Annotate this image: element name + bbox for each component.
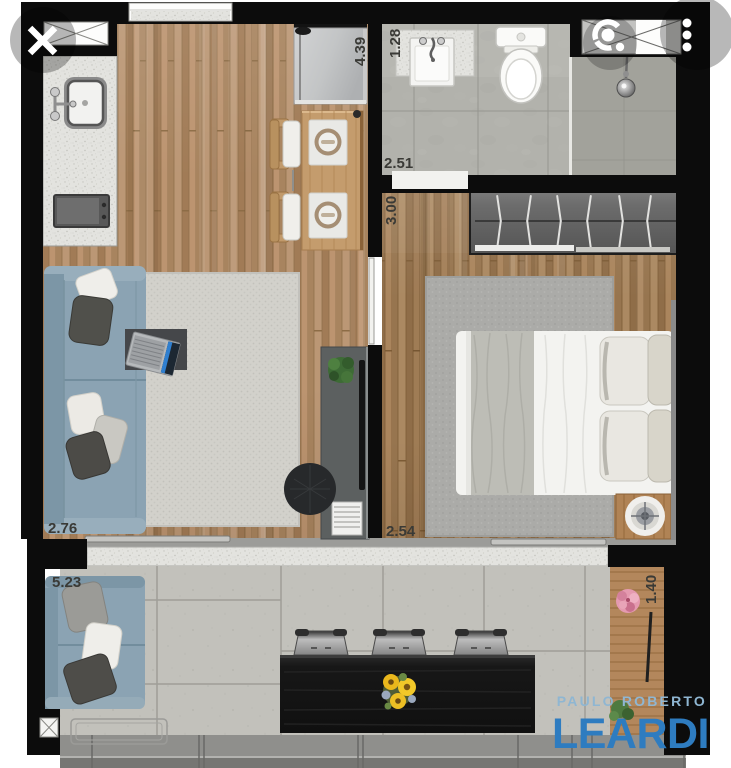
svg-text:3.00: 3.00 xyxy=(383,196,400,225)
svg-text:1.28: 1.28 xyxy=(387,29,404,58)
svg-text:1.40: 1.40 xyxy=(643,575,660,604)
svg-text:2.54: 2.54 xyxy=(386,523,416,540)
svg-text:PAULO ROBERTO: PAULO ROBERTO xyxy=(557,693,707,709)
svg-text:LEARDI: LEARDI xyxy=(552,710,709,758)
svg-text:5.23: 5.23 xyxy=(52,574,81,591)
svg-text:2.76: 2.76 xyxy=(48,520,77,537)
svg-text:2.51: 2.51 xyxy=(384,155,413,172)
svg-text:4.39: 4.39 xyxy=(352,37,369,66)
